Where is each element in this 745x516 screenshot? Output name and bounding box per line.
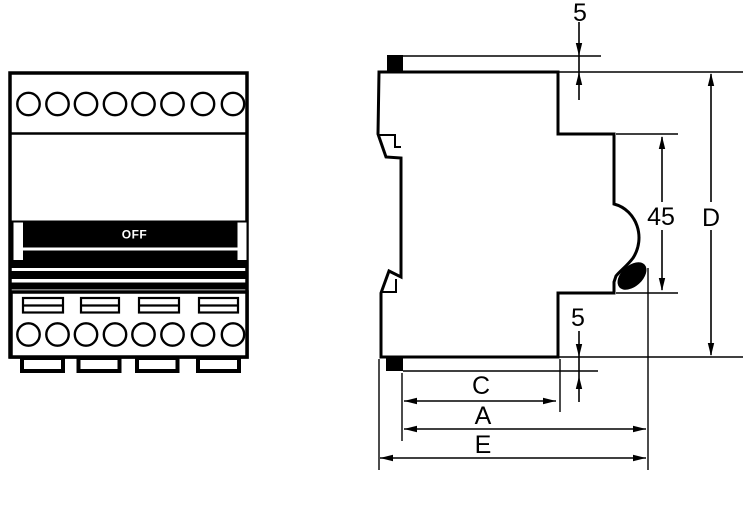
terminal-hole [75,323,97,345]
terminal-hole [104,93,126,115]
terminal-hole [222,323,244,345]
arrow-up-icon [659,136,665,149]
dimension-label-e: E [475,431,492,459]
terminal-hole [17,323,39,345]
arrow-up-icon [576,72,582,85]
mounting-foot [79,358,120,371]
arrow-down-icon [576,344,582,357]
case-stripe [9,283,248,290]
arrow-right-icon [543,398,556,404]
dimension-label-top-5: 5 [573,0,587,27]
arrow-up-icon [708,73,714,86]
terminal-hole [75,93,97,115]
terminal-hole [46,323,68,345]
dimension-label-bottom-5: 5 [571,304,585,332]
terminal-hole [132,323,154,345]
toggle-recess-right-notch [238,223,247,261]
dimension-label-d: D [702,204,720,232]
terminal-hole [192,93,214,115]
terminal-hole [17,93,39,115]
technical-drawing-canvas: OFF [0,0,745,516]
terminal-hole [222,93,244,115]
drawing: OFF [0,0,745,516]
arrow-up-icon [576,376,582,389]
arrow-right-icon [633,426,646,432]
toggle-recess-left-notch [14,223,24,261]
dimension-label-a: A [475,402,492,430]
dimension-label-c: C [472,372,490,400]
terminal-hole [104,323,126,345]
rear-bottom-foot [386,357,403,371]
toggle-switch: OFF [11,221,247,269]
arrow-left-icon [404,426,417,432]
case-stripe [9,271,248,279]
side-view: 5 45 D 5 C A E [378,0,743,470]
terminal-hole [192,323,214,345]
rear-top-tab [387,55,403,72]
mounting-foot [137,358,178,371]
side-profile-outline [378,72,639,357]
arrow-down-icon [576,43,582,56]
front-view: OFF [9,73,248,371]
terminal-hole [132,93,154,115]
terminal-hole [161,323,183,345]
mounting-foot [198,358,239,371]
dimension-label-45: 45 [647,203,675,231]
toggle-state-label: OFF [122,228,148,242]
mounting-foot [22,358,63,371]
toggle-handle-edge [23,248,238,251]
terminal-hole [46,93,68,115]
mounting-feet-row [22,358,239,371]
arrow-left-icon [404,398,417,404]
arrow-down-icon [708,343,714,356]
arrow-down-icon [659,278,665,291]
arrow-right-icon [633,455,646,461]
arrow-left-icon [380,455,393,461]
terminal-hole [161,93,183,115]
